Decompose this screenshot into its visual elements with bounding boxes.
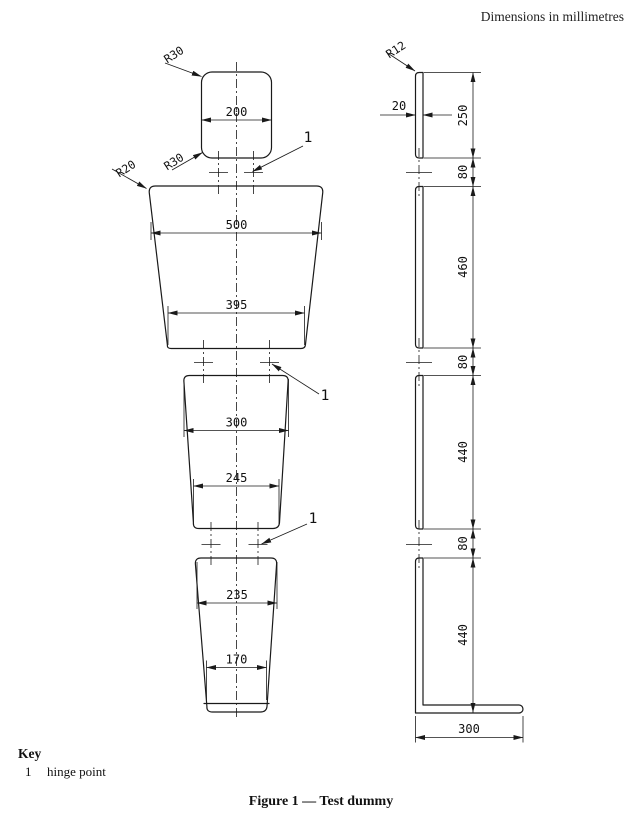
dim-lower-leg-bottom-width: 170	[226, 653, 248, 667]
front-radius-labels: R30 R30 R20	[112, 43, 203, 188]
test-dummy-drawing: 200 500 395 300 245	[0, 0, 630, 821]
hinge-point-leaders: 1 1 1	[253, 130, 330, 544]
dim-torso-top-width: 500	[226, 218, 248, 232]
key-item-ref: 1	[25, 764, 35, 780]
radius-label-head-bottom: R30	[161, 150, 186, 173]
dim-torso-height: 460	[456, 256, 470, 278]
dim-upper-leg-height: 440	[456, 441, 470, 463]
dim-thickness: 20	[392, 99, 406, 113]
side-view: 250 80 460 80 440 80 440 20	[380, 38, 523, 742]
side-radius-label: R12	[383, 38, 415, 71]
hinge-label-2: 1	[321, 388, 330, 404]
dim-head-width: 200	[226, 105, 248, 119]
front-upper-legs-outline	[184, 376, 288, 529]
dim-gap-leg-leg: 80	[456, 536, 470, 550]
hinge-label-1: 1	[304, 130, 313, 146]
drawing-sheet: Dimensions in millimetres	[0, 0, 630, 821]
side-dimension-chain: 250 80 460 80 440 80 440	[456, 73, 473, 713]
key-item-label: hinge point	[47, 764, 106, 779]
dim-torso-bottom-width: 395	[226, 298, 248, 312]
dim-gap-head-torso: 80	[456, 165, 470, 179]
dim-upper-leg-top-width: 300	[226, 416, 248, 430]
side-upper-leg-outline	[416, 376, 424, 530]
dim-foot-length: 300	[458, 722, 480, 736]
figure-caption: Figure 1 — Test dummy	[6, 794, 630, 810]
dim-upper-leg-bottom-width: 245	[226, 471, 248, 485]
key-item-hinge-point: 1hinge point	[25, 764, 106, 780]
radius-label-torso: R20	[113, 157, 138, 180]
front-torso-outline	[149, 186, 323, 349]
front-lower-legs-outline	[195, 558, 276, 712]
radius-label-head-top: R30	[161, 43, 186, 66]
key-title: Key	[18, 746, 41, 762]
side-extension-lines	[424, 73, 481, 559]
dim-gap-torso-leg: 80	[456, 355, 470, 369]
dim-lower-leg-top-width: 235	[226, 588, 248, 602]
front-view: 200 500 395 300 245	[112, 43, 329, 720]
side-foot-dimension: 300	[416, 716, 524, 743]
side-head-outline	[416, 73, 424, 159]
radius-label-side-head: R12	[383, 38, 408, 61]
dim-lower-leg-height: 440	[456, 624, 470, 646]
side-torso-outline	[416, 187, 424, 349]
hinge-label-3: 1	[309, 511, 318, 527]
dim-head-height: 250	[456, 105, 470, 127]
side-hinge-marks	[406, 148, 432, 569]
